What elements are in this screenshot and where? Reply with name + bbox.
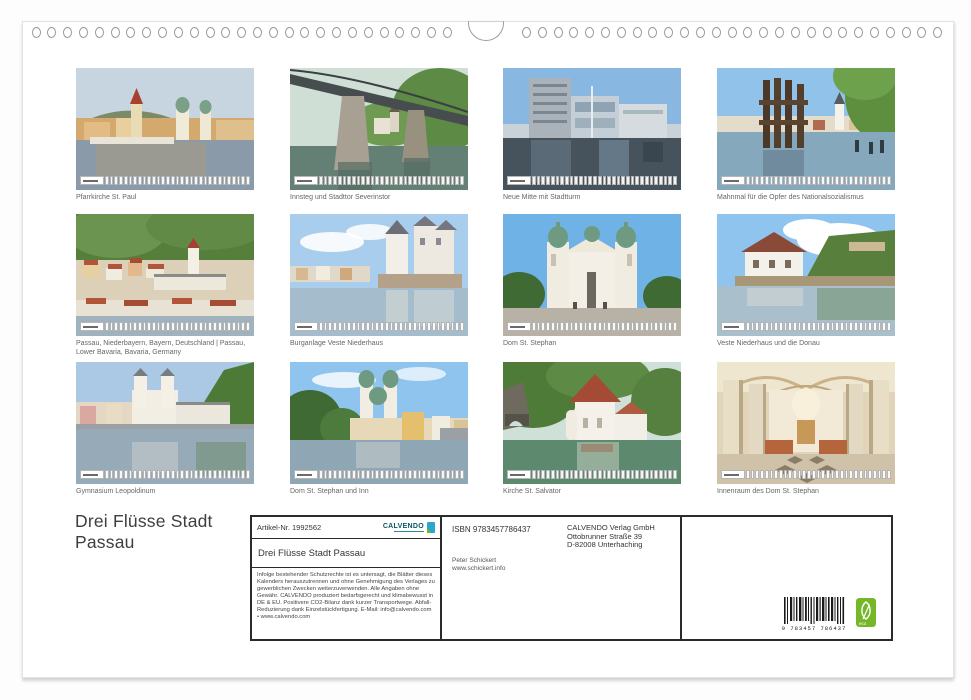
mini-calendar-day-box — [133, 322, 137, 331]
photo-dom-st-stephan — [503, 214, 681, 336]
mini-calendar-day-box — [868, 322, 872, 331]
mini-calendar-day-box — [882, 470, 886, 479]
mini-calendar-day-box — [845, 176, 849, 185]
mini-calendar-day-box — [668, 176, 672, 185]
mini-calendar-day-box — [864, 470, 868, 479]
mini-calendar-day-box — [437, 322, 441, 331]
mini-calendar-day-box — [147, 176, 151, 185]
article-row: Artikel-Nr. 1992562 CALVENDO — [252, 517, 440, 539]
mini-calendar-day-box — [574, 176, 578, 185]
mini-calendar-day-box — [399, 176, 403, 185]
photo-illustration — [76, 362, 254, 484]
binding-ring — [633, 27, 642, 38]
binding-ring — [838, 27, 847, 38]
mini-calendar-day-box — [385, 470, 389, 479]
mini-calendar-day-box — [654, 322, 658, 331]
mini-calendar-day-box — [779, 470, 783, 479]
mini-calendar-day-box — [105, 322, 109, 331]
photo-caption: Dom St. Stephan — [503, 340, 681, 349]
mini-calendar-day-box — [659, 322, 663, 331]
mini-calendar-day-box — [343, 176, 347, 185]
binding-ring — [680, 27, 689, 38]
mini-calendar-day-box — [237, 470, 241, 479]
mini-calendar-day-box — [878, 176, 882, 185]
mini-calendar-strip — [80, 470, 250, 479]
mini-calendar-month-box — [294, 176, 318, 185]
mini-calendar-day-box — [404, 176, 408, 185]
mini-calendar-strip — [721, 322, 891, 331]
mini-calendar-day-box — [427, 176, 431, 185]
photo-kirche-st-salvator — [503, 362, 681, 484]
mini-calendar-day-box — [157, 322, 161, 331]
mini-calendar-day-box — [241, 176, 245, 185]
mini-calendar-day-box — [821, 470, 825, 479]
mini-calendar-day-box — [673, 322, 677, 331]
photo-caption: Gymnasium Leopoldinum — [76, 488, 254, 497]
mini-calendar-day-box — [607, 470, 611, 479]
photo-dom-und-inn — [290, 362, 468, 484]
mini-calendar-day-box — [361, 470, 365, 479]
mini-calendar-strip — [294, 322, 464, 331]
mini-calendar-day-box — [812, 322, 816, 331]
mini-calendar-day-box — [868, 470, 872, 479]
mini-calendar-day-box — [746, 176, 750, 185]
mini-calendar-day-box — [185, 470, 189, 479]
mini-calendar-month-box — [294, 322, 318, 331]
mini-calendar-day-box — [812, 470, 816, 479]
mini-calendar-day-box — [427, 322, 431, 331]
mini-calendar-day-box — [213, 470, 217, 479]
mini-calendar-day-box — [190, 176, 194, 185]
photo-veste-niederhaus — [290, 214, 468, 336]
mini-calendar-day-box — [626, 176, 630, 185]
binding-ring — [111, 27, 120, 38]
mini-calendar-day-box — [333, 470, 337, 479]
mini-calendar-day-box — [324, 322, 328, 331]
mini-calendar-day-box — [546, 322, 550, 331]
mini-calendar-day-box — [114, 470, 118, 479]
photographer-credit: Peter Schickert www.schickert.info — [452, 557, 505, 572]
mini-calendar-day-box — [394, 176, 398, 185]
mini-calendar-month-box — [507, 176, 531, 185]
mini-calendar-day-box — [598, 470, 602, 479]
mini-calendar-day-box — [668, 470, 672, 479]
mini-calendar-day-box — [793, 176, 797, 185]
mini-calendar-day-box — [138, 470, 142, 479]
mini-calendar-month-box — [294, 470, 318, 479]
mini-calendar-day-box — [878, 322, 882, 331]
mini-calendar-day-box — [343, 470, 347, 479]
mini-calendar-day-box — [560, 470, 564, 479]
mini-calendar-day-box — [390, 322, 394, 331]
mini-calendar-day-box — [864, 322, 868, 331]
mini-calendar-day-box — [223, 322, 227, 331]
legal-text: Infolge bestehender Schutzrechte ist es … — [252, 568, 440, 639]
mini-calendar-day-box — [650, 470, 654, 479]
mini-calendar-day-box — [380, 322, 384, 331]
mini-calendar-day-box — [246, 322, 250, 331]
mini-calendar-month-box — [80, 470, 104, 479]
mini-calendar-day-box — [418, 470, 422, 479]
binding-ring — [886, 27, 895, 38]
mini-calendar-day-box — [541, 176, 545, 185]
mini-calendar-day-box — [551, 470, 555, 479]
mini-calendar-day-box — [807, 176, 811, 185]
binding-ring — [648, 27, 657, 38]
thumbnail-cell: Innenraum des Dom St. Stephan — [717, 362, 895, 497]
eco-logo: eco — [856, 598, 876, 627]
mini-calendar-day-box — [826, 176, 830, 185]
binding-ring — [933, 27, 942, 38]
mini-calendar-day-box — [635, 322, 639, 331]
mini-calendar-day-box — [180, 176, 184, 185]
mini-calendar-day-box — [593, 176, 597, 185]
mini-calendar-day-box — [612, 470, 616, 479]
mini-calendar-day-box — [366, 322, 370, 331]
mini-calendar-day-box — [765, 322, 769, 331]
mini-calendar-strip — [80, 176, 250, 185]
mini-calendar-day-box — [319, 470, 323, 479]
mini-calendar-day-box — [237, 176, 241, 185]
calvendo-tagline — [394, 531, 424, 533]
photo-illustration — [76, 68, 254, 190]
mini-calendar-day-box — [882, 176, 886, 185]
mini-calendar-day-box — [784, 322, 788, 331]
mini-calendar-day-box — [390, 470, 394, 479]
mini-calendar-month-box — [80, 322, 104, 331]
thumbnail-cell: Passau, Niederbayern, Bayern, Deutschlan… — [76, 214, 254, 357]
mini-calendar-day-box — [868, 176, 872, 185]
mini-calendar-day-box — [328, 470, 332, 479]
mini-calendar-day-box — [603, 470, 607, 479]
mini-calendar-day-box — [246, 176, 250, 185]
binding-ring — [300, 27, 309, 38]
mini-calendar-day-box — [446, 322, 450, 331]
mini-calendar-day-box — [208, 176, 212, 185]
mini-calendar-day-box — [831, 322, 835, 331]
mini-calendar-day-box — [129, 322, 133, 331]
mini-calendar-day-box — [185, 176, 189, 185]
mini-calendar-day-box — [659, 470, 663, 479]
binding-ring — [253, 27, 262, 38]
mini-calendar-day-box — [129, 470, 133, 479]
mini-calendar-day-box — [171, 470, 175, 479]
calvendo-logo-text: CALVENDO — [383, 523, 424, 533]
mini-calendar-day-box — [798, 470, 802, 479]
mini-calendar-day-box — [840, 176, 844, 185]
barcode-digits: 9 783457 786437 — [781, 625, 847, 632]
mini-calendar-day-box — [668, 322, 672, 331]
mini-calendar-day-box — [640, 322, 644, 331]
mini-calendar-day-box — [746, 322, 750, 331]
mini-calendar-day-box — [437, 470, 441, 479]
mini-calendar-day-box — [821, 176, 825, 185]
mini-calendar-day-box — [441, 176, 445, 185]
mini-calendar-day-box — [584, 322, 588, 331]
binding-ring — [348, 27, 357, 38]
mini-calendar-day-box — [418, 176, 422, 185]
mini-calendar-day-box — [631, 470, 635, 479]
mini-calendar-day-box — [328, 176, 332, 185]
mini-calendar-day-box — [598, 176, 602, 185]
mini-calendar-day-box — [399, 322, 403, 331]
mini-calendar-day-box — [166, 470, 170, 479]
thumbnail-cell: Gymnasium Leopoldinum — [76, 362, 254, 497]
binding-ring — [63, 27, 72, 38]
mini-calendar-day-box — [864, 176, 868, 185]
mini-calendar-day-box — [385, 322, 389, 331]
mini-calendar-day-box — [375, 176, 379, 185]
mini-calendar-day-box — [246, 470, 250, 479]
mini-calendar-day-box — [607, 176, 611, 185]
mini-calendar-day-box — [751, 470, 755, 479]
binding-ring — [221, 27, 230, 38]
mini-calendar-day-box — [157, 176, 161, 185]
mini-calendar-day-box — [357, 176, 361, 185]
binding-ring — [664, 27, 673, 38]
binding-ring — [395, 27, 404, 38]
mini-calendar-day-box — [774, 470, 778, 479]
mini-calendar-day-box — [328, 322, 332, 331]
mini-calendar-day-box — [673, 470, 677, 479]
mini-calendar-day-box — [873, 322, 877, 331]
mini-calendar-day-box — [654, 470, 658, 479]
mini-calendar-day-box — [319, 176, 323, 185]
mini-calendar-day-box — [324, 470, 328, 479]
photo-caption: Passau, Niederbayern, Bayern, Deutschlan… — [76, 340, 254, 357]
mini-calendar-day-box — [593, 470, 597, 479]
mini-calendar-day-box — [621, 470, 625, 479]
mini-calendar-day-box — [598, 322, 602, 331]
mini-calendar-month-box — [721, 322, 745, 331]
mini-calendar-day-box — [460, 176, 464, 185]
mini-calendar-day-box — [237, 322, 241, 331]
mini-calendar-day-box — [119, 322, 123, 331]
mini-calendar-day-box — [133, 470, 137, 479]
mini-calendar-day-box — [570, 322, 574, 331]
photo-caption: Kirche St. Salvator — [503, 488, 681, 497]
mini-calendar-day-box — [784, 176, 788, 185]
mini-calendar-day-box — [352, 470, 356, 479]
mini-calendar-day-box — [546, 176, 550, 185]
mini-calendar-day-box — [635, 470, 639, 479]
barcode-box: 9 783457 786437 eco — [682, 517, 891, 639]
mini-calendar-day-box — [887, 176, 891, 185]
photo-caption: Pfarrkirche St. Paul — [76, 194, 254, 203]
mini-calendar-day-box — [418, 322, 422, 331]
mini-calendar-day-box — [408, 322, 412, 331]
mini-calendar-day-box — [607, 322, 611, 331]
mini-calendar-strip — [507, 176, 677, 185]
mini-calendar-day-box — [565, 176, 569, 185]
mini-calendar-day-box — [190, 470, 194, 479]
mini-calendar-day-box — [213, 322, 217, 331]
mini-calendar-day-box — [532, 322, 536, 331]
mini-calendar-day-box — [849, 176, 853, 185]
mini-calendar-day-box — [845, 470, 849, 479]
mini-calendar-day-box — [760, 322, 764, 331]
photo-neue-mitte — [503, 68, 681, 190]
mini-calendar-day-box — [375, 470, 379, 479]
mini-calendar-day-box — [455, 470, 459, 479]
mini-calendar-day-box — [437, 176, 441, 185]
mini-calendar-day-box — [394, 322, 398, 331]
mini-calendar-day-box — [873, 176, 877, 185]
binding-ring — [237, 27, 246, 38]
binding-ring — [142, 27, 151, 38]
binding-ring — [443, 27, 452, 38]
mini-calendar-day-box — [105, 176, 109, 185]
mini-calendar-day-box — [451, 176, 455, 185]
mini-calendar-day-box — [887, 470, 891, 479]
mini-calendar-day-box — [556, 470, 560, 479]
mini-calendar-day-box — [194, 470, 198, 479]
photo-illustration — [290, 362, 468, 484]
mini-calendar-day-box — [770, 470, 774, 479]
mini-calendar-month-box — [721, 470, 745, 479]
mini-calendar-day-box — [650, 322, 654, 331]
mini-calendar-day-box — [394, 470, 398, 479]
mini-calendar-day-box — [760, 176, 764, 185]
mini-calendar-day-box — [129, 176, 133, 185]
mini-calendar-day-box — [166, 322, 170, 331]
binding-ring — [190, 27, 199, 38]
mini-calendar-day-box — [807, 322, 811, 331]
mini-calendar-day-box — [371, 322, 375, 331]
mini-calendar-day-box — [347, 470, 351, 479]
mini-calendar-day-box — [631, 176, 635, 185]
mini-calendar-day-box — [584, 470, 588, 479]
mini-calendar-day-box — [560, 322, 564, 331]
binding-ring — [427, 27, 436, 38]
mini-calendar-month-box — [507, 470, 531, 479]
mini-calendar-day-box — [124, 322, 128, 331]
photo-illustration — [503, 68, 681, 190]
mini-calendar-day-box — [451, 322, 455, 331]
mini-calendar-day-box — [422, 176, 426, 185]
mini-calendar-day-box — [432, 322, 436, 331]
mini-calendar-day-box — [835, 322, 839, 331]
mini-calendar-day-box — [537, 322, 541, 331]
photo-illustration — [503, 362, 681, 484]
mini-calendar-day-box — [194, 176, 198, 185]
mini-calendar-day-box — [213, 176, 217, 185]
binding-ring — [522, 27, 531, 38]
mini-calendar-day-box — [831, 176, 835, 185]
mini-calendar-day-box — [746, 470, 750, 479]
mini-calendar-day-box — [821, 322, 825, 331]
mini-calendar-day-box — [232, 176, 236, 185]
mini-calendar-day-box — [347, 322, 351, 331]
mini-calendar-day-box — [441, 470, 445, 479]
mini-calendar-day-box — [640, 176, 644, 185]
mini-calendar-day-box — [645, 322, 649, 331]
mini-calendar-day-box — [199, 322, 203, 331]
mini-calendar-day-box — [324, 176, 328, 185]
mini-calendar-day-box — [774, 176, 778, 185]
binding-ring — [585, 27, 594, 38]
mini-calendar-day-box — [770, 176, 774, 185]
mini-calendar-day-box — [584, 176, 588, 185]
mini-calendar-day-box — [199, 176, 203, 185]
mini-calendar-day-box — [241, 470, 245, 479]
mini-calendar-day-box — [455, 322, 459, 331]
mini-calendar-day-box — [138, 322, 142, 331]
mini-calendar-day-box — [798, 176, 802, 185]
mini-calendar-day-box — [878, 470, 882, 479]
calvendo-wordmark: CALVENDO — [383, 523, 424, 530]
mini-calendar-day-box — [227, 176, 231, 185]
binding-ring — [538, 27, 547, 38]
mini-calendar-day-box — [223, 470, 227, 479]
mini-calendar-day-box — [631, 322, 635, 331]
mini-calendar-day-box — [343, 322, 347, 331]
mini-calendar-day-box — [208, 470, 212, 479]
mini-calendar-day-box — [338, 470, 342, 479]
mini-calendar-day-box — [218, 176, 222, 185]
binding-ring — [617, 27, 626, 38]
mini-calendar-day-box — [788, 176, 792, 185]
mini-calendar-day-box — [588, 176, 592, 185]
info-boxes: Artikel-Nr. 1992562 CALVENDO Drei Flüsse… — [250, 515, 893, 641]
mini-calendar-day-box — [432, 470, 436, 479]
mini-calendar-day-box — [152, 322, 156, 331]
calendar-back-page: Pfarrkirche St. Paul Innsteg und Stadtto… — [0, 0, 971, 700]
mini-calendar-day-box — [147, 322, 151, 331]
binding-ring — [332, 27, 341, 38]
mini-calendar-day-box — [626, 322, 630, 331]
mini-calendar-day-box — [617, 470, 621, 479]
mini-calendar-day-box — [802, 322, 806, 331]
mini-calendar-day-box — [579, 176, 583, 185]
mini-calendar-day-box — [755, 176, 759, 185]
mini-calendar-day-box — [119, 176, 123, 185]
mini-calendar-day-box — [241, 322, 245, 331]
mini-calendar-day-box — [654, 176, 658, 185]
mini-calendar-day-box — [593, 322, 597, 331]
mini-calendar-day-box — [635, 176, 639, 185]
mini-calendar-day-box — [873, 470, 877, 479]
mini-calendar-day-box — [541, 322, 545, 331]
binding-ring — [126, 27, 135, 38]
calvendo-flag-icon — [426, 522, 435, 534]
mini-calendar-day-box — [579, 470, 583, 479]
mini-calendar-day-box — [807, 470, 811, 479]
binding-ring — [285, 27, 294, 38]
mini-calendar-day-box — [366, 470, 370, 479]
mini-calendar-day-box — [422, 322, 426, 331]
photo-illustration — [717, 362, 895, 484]
mini-calendar-day-box — [537, 470, 541, 479]
mini-calendar-day-box — [446, 176, 450, 185]
mini-calendar-strip — [507, 470, 677, 479]
photo-pfarrkirche-st-paul — [76, 68, 254, 190]
mini-calendar-day-box — [119, 470, 123, 479]
mini-calendar-day-box — [110, 176, 114, 185]
mini-calendar-day-box — [357, 470, 361, 479]
photo-illustration — [717, 214, 895, 336]
photo-caption: Neue Mitte mit Stadtturm — [503, 194, 681, 203]
mini-calendar-day-box — [166, 176, 170, 185]
mini-calendar-day-box — [788, 470, 792, 479]
mini-calendar-day-box — [551, 322, 555, 331]
mini-calendar-day-box — [784, 470, 788, 479]
mini-calendar-day-box — [751, 176, 755, 185]
thumbnail-cell: Pfarrkirche St. Paul — [76, 68, 254, 203]
mini-calendar-day-box — [385, 176, 389, 185]
mini-calendar-day-box — [859, 322, 863, 331]
mini-calendar-day-box — [110, 322, 114, 331]
